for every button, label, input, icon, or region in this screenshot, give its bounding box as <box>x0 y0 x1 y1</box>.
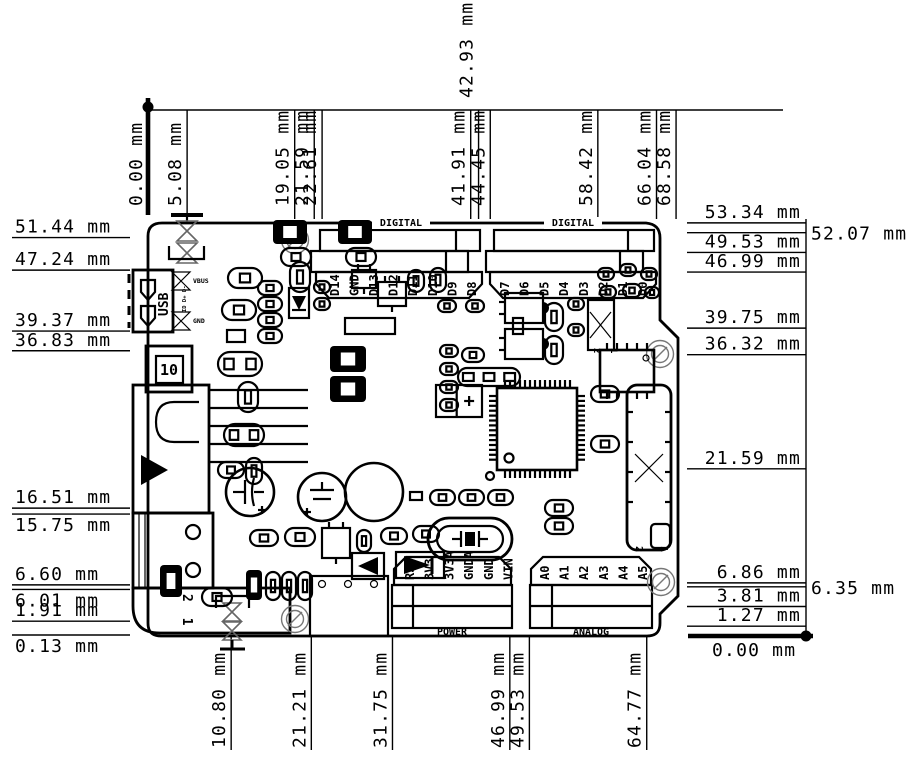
mcu-chip <box>486 380 585 480</box>
dimension-label: 51.44 mm <box>15 217 111 238</box>
pin-label-vin: VIN <box>502 558 516 580</box>
dimension-label: 53.34 mm <box>705 202 801 223</box>
usb-vbus-label: VBUS <box>193 277 209 285</box>
dimension-label: 21.21 mm <box>289 652 310 748</box>
polarity-arrow-icon <box>141 455 168 485</box>
smd-component <box>545 500 573 516</box>
digital-right-title: DIGITAL <box>552 218 594 229</box>
smd-component <box>545 336 563 364</box>
smd-component <box>222 300 256 320</box>
pin-label-gnd: GND <box>348 274 362 296</box>
smd-component <box>330 346 366 372</box>
digital-left-title: DIGITAL <box>380 218 422 229</box>
smd-component <box>410 492 422 500</box>
smd-component <box>381 528 407 544</box>
mounting-hole-icon <box>282 606 309 633</box>
dimension-label: 21.59 mm <box>705 448 801 469</box>
bottom-edge-component <box>216 596 249 649</box>
smd-component <box>224 424 264 446</box>
dimension-label: 39.75 mm <box>705 307 801 328</box>
dimensions-bottom: 10.80 mm21.21 mm31.75 mm46.99 mm49.53 mm… <box>209 637 647 750</box>
dimension-label: 66.04 mm <box>635 110 656 206</box>
origin-dot-icon <box>143 102 154 113</box>
smd-component <box>545 518 573 534</box>
usb-connector: USB VBUS ID D+ D- GND <box>129 270 209 332</box>
dimension-label: 1.27 mm <box>717 605 801 626</box>
smd-component <box>345 318 395 334</box>
pin-label-a2: A2 <box>577 566 591 580</box>
pin-label-3v3: 3V3 <box>423 558 437 580</box>
smd-component <box>246 570 262 600</box>
smd-component <box>440 381 458 393</box>
dimension-label: 44.45 mm <box>468 110 489 206</box>
dimension-label: 52.07 mm <box>811 224 907 245</box>
usb-data-label: ID D+ D- <box>182 286 188 313</box>
usb-b-shell <box>133 385 308 513</box>
usb-label: USB <box>157 292 172 316</box>
smd-component <box>466 300 484 312</box>
dimension-label: 68.58 mm <box>654 110 675 206</box>
dimension-label: 19.05 mm <box>273 110 294 206</box>
dimension-label: 6.86 mm <box>717 562 801 583</box>
smd-component <box>438 300 456 312</box>
pin-label-d8: D8 <box>465 282 479 296</box>
side-connector: 21 <box>627 385 671 552</box>
pin-label-d9: D9 <box>445 282 459 296</box>
dimension-label: 0.13 mm <box>15 636 99 657</box>
pin-marker: 1 <box>658 546 669 552</box>
mounting-hole-icon <box>647 341 674 368</box>
smd-component <box>160 565 182 597</box>
smd-component <box>322 522 350 564</box>
pin-label-gnd: GND <box>482 558 496 580</box>
smd-component <box>440 345 458 357</box>
dimension-label: 22.61 mm <box>300 110 321 206</box>
pcb-dimension-drawing: 0.00 mm5.08 mm19.05 mm21.59 mm22.61 mm41… <box>0 0 918 771</box>
smd-component <box>545 303 563 331</box>
dimension-label: 39.37 mm <box>15 310 111 331</box>
pin-labels: D14GNDD13D12D11D10D9D8D7D6D5D4D3D2D1D0RS… <box>328 274 650 580</box>
dimension-label: 36.83 mm <box>15 330 111 351</box>
smd-component <box>266 572 280 600</box>
smd-component <box>357 530 371 552</box>
pin-label-a4: A4 <box>616 566 630 580</box>
smd-component <box>459 490 484 505</box>
smd-component <box>330 376 366 402</box>
module-footprint <box>310 576 388 636</box>
component-10-label: 10 <box>160 361 178 379</box>
pin-marker: 2 <box>633 546 644 552</box>
pin-label-gnda: GNDA <box>462 550 476 580</box>
pin-label-a0: A0 <box>538 566 552 580</box>
dimension-label: 0.00 mm <box>712 640 796 661</box>
gnd-symbol-icon <box>172 312 190 330</box>
smd-component <box>641 268 657 280</box>
dimensions-left: 51.44 mm47.24 mm39.37 mm36.83 mm16.51 mm… <box>12 217 130 657</box>
dimension-label: 5.08 mm <box>165 122 186 206</box>
origin-dot-icon <box>801 631 812 642</box>
smd-component <box>488 490 513 505</box>
smd-component <box>462 348 484 362</box>
smd-component <box>258 281 282 295</box>
dimension-label: 42.93 mm <box>457 2 478 98</box>
smd-component <box>591 436 619 452</box>
power-title: POWER <box>437 627 468 638</box>
pin-label-d3: D3 <box>577 282 591 296</box>
dimension-drawing-canvas: 0.00 mm5.08 mm19.05 mm21.59 mm22.61 mm41… <box>0 0 918 771</box>
smd-component <box>440 363 458 375</box>
smd-component <box>218 352 262 376</box>
dimension-label: 46.99 mm <box>705 251 801 272</box>
smd-component <box>258 297 282 311</box>
dimension-label: 49.53 mm <box>705 231 801 252</box>
dimension-label: 41.91 mm <box>449 110 470 206</box>
dimension-label: 49.53 mm <box>507 652 528 748</box>
dimension-label: 0.00 mm <box>126 122 147 206</box>
smd-component <box>285 528 315 546</box>
smd-component <box>338 220 372 244</box>
smd-component <box>228 268 262 288</box>
smd-component <box>273 220 307 244</box>
smd-component <box>568 324 584 336</box>
smd-component <box>258 329 282 343</box>
smd-component <box>513 318 523 334</box>
dimension-label: 31.75 mm <box>370 652 391 748</box>
dimension-label: 10.80 mm <box>209 652 230 748</box>
dimension-label: 64.77 mm <box>625 652 646 748</box>
pin1-dot-icon <box>505 454 514 463</box>
dimension-label: 1.91 mm <box>15 600 99 621</box>
pin-label-a3: A3 <box>597 566 611 580</box>
dimension-label: 6.60 mm <box>15 564 99 585</box>
smd-component <box>598 268 614 280</box>
dimension-label: 16.51 mm <box>15 487 111 508</box>
jack-pin-markers: 2 1 <box>179 594 194 629</box>
dimensions-top: 0.00 mm5.08 mm19.05 mm21.59 mm22.61 mm41… <box>126 2 783 219</box>
pin-label-d4: D4 <box>557 282 571 296</box>
usb-gnd-label: GND <box>193 317 205 325</box>
smd-component <box>591 386 619 402</box>
dimension-label: 6.35 mm <box>811 578 895 599</box>
capacitor-large-2 <box>298 473 346 521</box>
dimension-label: 46.99 mm <box>488 652 509 748</box>
capacitor-large-1 <box>226 468 274 516</box>
smd-component <box>314 298 330 310</box>
dimension-label: 47.24 mm <box>15 249 111 270</box>
smd-component <box>227 330 245 342</box>
dimension-label: 3.81 mm <box>717 585 801 606</box>
dimension-label: 36.32 mm <box>705 334 801 355</box>
smd-component <box>620 264 636 276</box>
dimensions-right: 53.34 mm52.07 mm49.53 mm46.99 mm39.75 mm… <box>687 202 907 661</box>
smd-component <box>258 313 282 327</box>
smd-component <box>440 399 458 411</box>
smd-component <box>430 490 455 505</box>
smd-component <box>413 526 439 542</box>
analog-title: ANALOG <box>573 627 609 638</box>
capacitor-large-3 <box>345 463 403 521</box>
dimension-label: 15.75 mm <box>15 515 111 536</box>
connector-footprint-x: 21 <box>588 300 618 353</box>
smd-component <box>250 530 278 546</box>
pin-label-a1: A1 <box>558 566 572 580</box>
dimension-label: 58.42 mm <box>576 110 597 206</box>
smd-component <box>568 298 584 310</box>
